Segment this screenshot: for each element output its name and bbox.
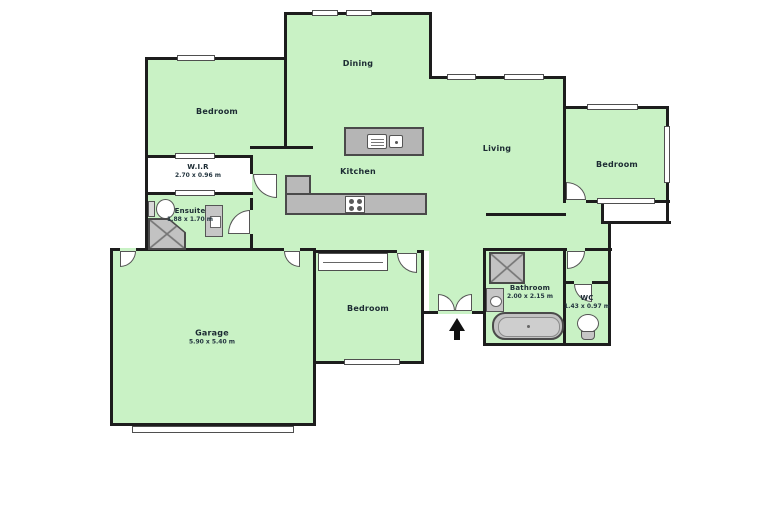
room-name: Garage [195, 328, 229, 337]
hallway [250, 146, 287, 251]
room-name: Bedroom [347, 304, 389, 313]
wall [145, 57, 287, 60]
label-wir: W.I.R 2.70 x 0.96 m [175, 163, 221, 179]
entry-direction-arrow [449, 318, 465, 342]
window [664, 126, 670, 183]
room-name: Kitchen [340, 167, 376, 176]
label-bathroom: Bathroom 2.00 x 2.15 m [507, 284, 553, 300]
bathroom-shower [489, 252, 525, 284]
window [344, 359, 400, 365]
wall [563, 76, 566, 109]
window [504, 74, 544, 80]
label-dining: Dining [343, 59, 373, 69]
label-bedroom-right: Bedroom [596, 160, 638, 170]
wall [566, 281, 574, 284]
wall [284, 12, 287, 149]
window [177, 55, 215, 61]
room-name: Bedroom [196, 107, 238, 116]
label-bedroom-bottom: Bedroom [347, 304, 389, 314]
label-ensuite: Ensuite 1.88 x 1.70 m [167, 207, 213, 223]
window [346, 10, 372, 16]
wall [313, 248, 316, 426]
wall [592, 281, 609, 284]
label-wc: WC 1.43 x 0.97 m [564, 294, 610, 310]
room-name: Bedroom [596, 160, 638, 169]
room-dimensions: 2.70 x 0.96 m [175, 172, 221, 180]
room-name: Living [483, 144, 511, 153]
room-name: Bathroom [510, 284, 550, 292]
wardrobe-bottom-bedroom [318, 253, 388, 271]
wall [429, 12, 432, 79]
label-bedroom-topleft: Bedroom [196, 107, 238, 117]
window [312, 10, 338, 16]
garage-door [132, 426, 294, 433]
label-kitchen: Kitchen [340, 167, 376, 177]
room-dimensions: 1.43 x 0.97 m [564, 303, 610, 311]
label-garage: Garage 5.90 x 5.40 m [189, 328, 235, 346]
wall [486, 213, 566, 216]
cooktop [345, 196, 365, 213]
wall [110, 248, 113, 426]
room-name: W.I.R [187, 163, 208, 171]
room-dimensions: 2.00 x 2.15 m [507, 293, 553, 301]
bathtub [492, 312, 564, 340]
wall [601, 203, 604, 221]
sink-drainer [367, 134, 387, 149]
wall [250, 198, 253, 210]
toilet-cistern [148, 201, 155, 217]
wall [483, 248, 567, 251]
wall [601, 221, 671, 224]
room-dimensions: 5.90 x 5.40 m [189, 338, 235, 346]
kitchen-sink [389, 135, 403, 148]
room-name: Ensuite [175, 207, 206, 215]
room-name: WC [580, 294, 593, 302]
wardrobe-slider [597, 198, 655, 204]
wardrobe-right-bedroom [603, 203, 669, 221]
wall [250, 155, 253, 174]
wall [608, 221, 611, 346]
wardrobe-slider [175, 190, 215, 196]
wardrobe-slider [323, 262, 383, 263]
wall [250, 234, 253, 251]
wc-toilet-base [581, 331, 595, 340]
label-living: Living [483, 144, 511, 154]
floorplan-page: Bedroom Dining Kitchen Living Bedroom W.… [0, 0, 768, 512]
wall [145, 57, 148, 251]
wardrobe-slider [175, 153, 215, 159]
wall [483, 343, 611, 346]
wall [250, 146, 313, 149]
wall [421, 250, 424, 364]
window [447, 74, 476, 80]
room-name: Dining [343, 59, 373, 68]
footer: ARIZTO 3A/548 Williams Street, Kaiapoi D… [0, 447, 768, 512]
room-dimensions: 1.88 x 1.70 m [167, 216, 213, 224]
window [587, 104, 638, 110]
bathroom-vanity [486, 288, 504, 312]
